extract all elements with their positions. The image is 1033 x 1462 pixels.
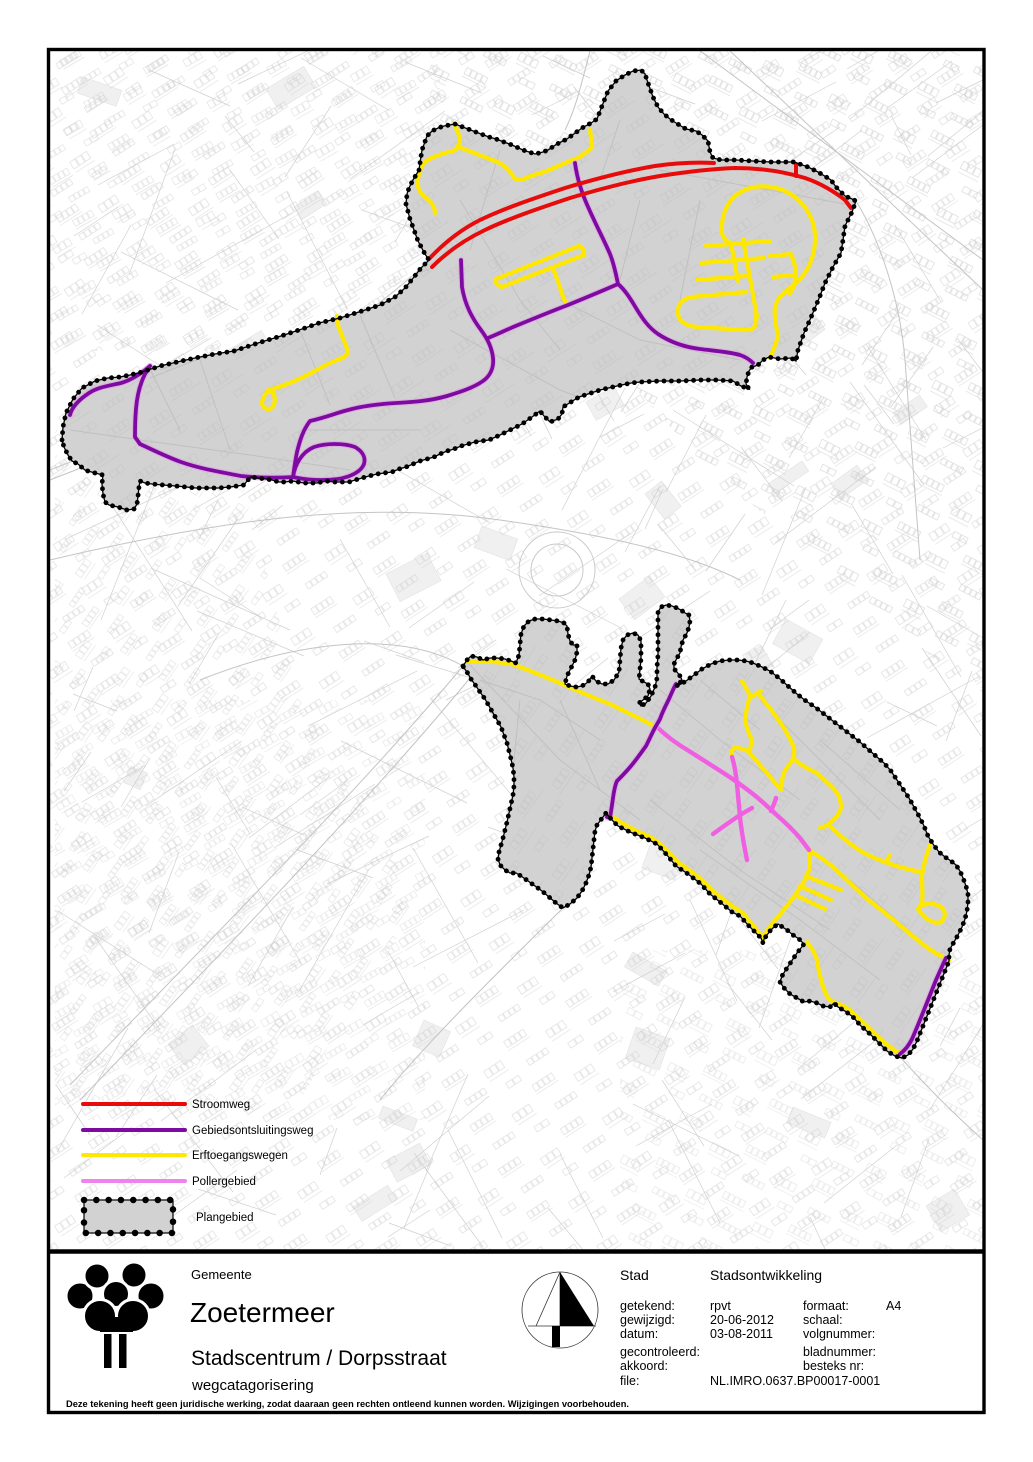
- svg-text:Erftoegangswegen: Erftoegangswegen: [192, 1150, 288, 1162]
- svg-text:formaat:: formaat:: [803, 1299, 849, 1313]
- svg-text:volgnummer:: volgnummer:: [803, 1327, 875, 1341]
- svg-text:A4: A4: [886, 1299, 901, 1313]
- svg-text:Stad: Stad: [620, 1267, 649, 1283]
- svg-text:datum:: datum:: [620, 1327, 658, 1341]
- svg-text:gecontroleerd:: gecontroleerd:: [620, 1345, 700, 1359]
- svg-text:besteks nr:: besteks nr:: [803, 1359, 864, 1373]
- svg-text:schaal:: schaal:: [803, 1313, 843, 1327]
- svg-text:Stroomweg: Stroomweg: [192, 1099, 250, 1111]
- svg-text:NL.IMRO.0637.BP00017-0001: NL.IMRO.0637.BP00017-0001: [710, 1374, 880, 1388]
- svg-text:Zoetermeer: Zoetermeer: [190, 1297, 335, 1328]
- svg-text:Pollergebied: Pollergebied: [192, 1176, 256, 1188]
- svg-text:Plangebied: Plangebied: [196, 1212, 254, 1224]
- svg-text:wegcatagorisering: wegcatagorisering: [191, 1377, 314, 1394]
- svg-text:Gebiedsontsluitingsweg: Gebiedsontsluitingsweg: [192, 1125, 313, 1137]
- svg-text:Stadscentrum / Dorpsstraat: Stadscentrum / Dorpsstraat: [191, 1347, 447, 1370]
- svg-text:Stadsontwikkeling: Stadsontwikkeling: [710, 1267, 822, 1283]
- svg-text:Gemeente: Gemeente: [191, 1267, 252, 1282]
- svg-text:rpvt: rpvt: [710, 1299, 731, 1313]
- svg-text:akkoord:: akkoord:: [620, 1359, 668, 1373]
- svg-text:getekend:: getekend:: [620, 1299, 675, 1313]
- svg-text:20-06-2012: 20-06-2012: [710, 1313, 774, 1327]
- svg-text:bladnummer:: bladnummer:: [803, 1345, 876, 1359]
- svg-text:Deze tekening heeft geen jurid: Deze tekening heeft geen juridische werk…: [66, 1399, 629, 1409]
- svg-text:file:: file:: [620, 1374, 639, 1388]
- svg-text:03-08-2011: 03-08-2011: [710, 1327, 773, 1341]
- svg-text:gewijzigd:: gewijzigd:: [620, 1313, 675, 1327]
